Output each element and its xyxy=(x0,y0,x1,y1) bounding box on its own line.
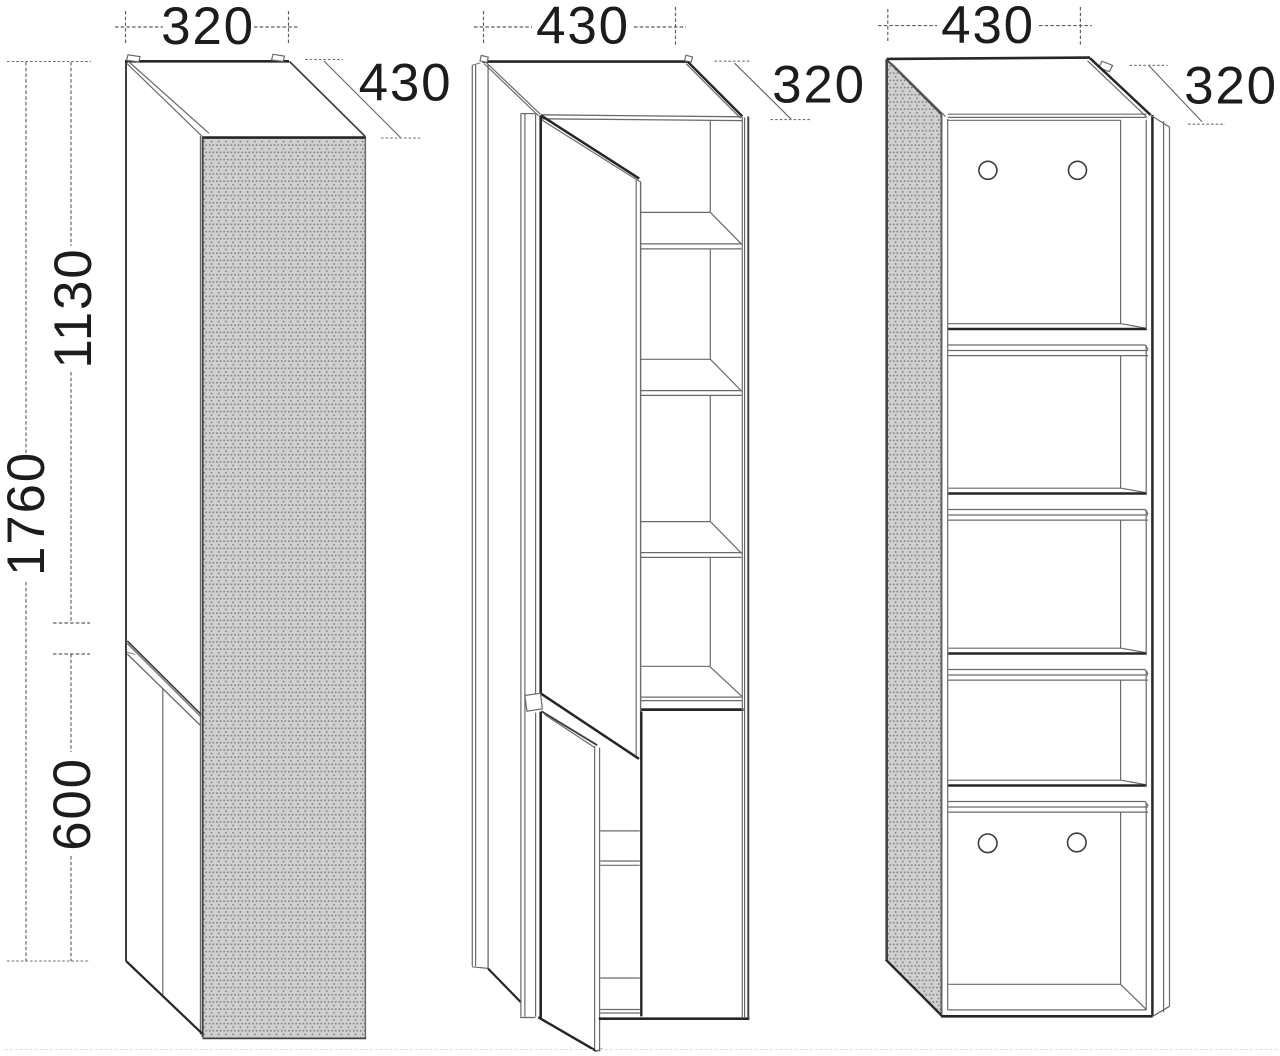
svg-text:320: 320 xyxy=(1184,57,1278,116)
svg-text:1760: 1760 xyxy=(0,451,56,576)
svg-text:320: 320 xyxy=(161,0,255,56)
svg-text:1130: 1130 xyxy=(44,247,103,368)
svg-text:320: 320 xyxy=(772,56,866,115)
svg-text:430: 430 xyxy=(536,0,630,56)
svg-text:430: 430 xyxy=(941,0,1035,55)
svg-text:600: 600 xyxy=(43,757,102,851)
svg-text:430: 430 xyxy=(359,54,453,113)
